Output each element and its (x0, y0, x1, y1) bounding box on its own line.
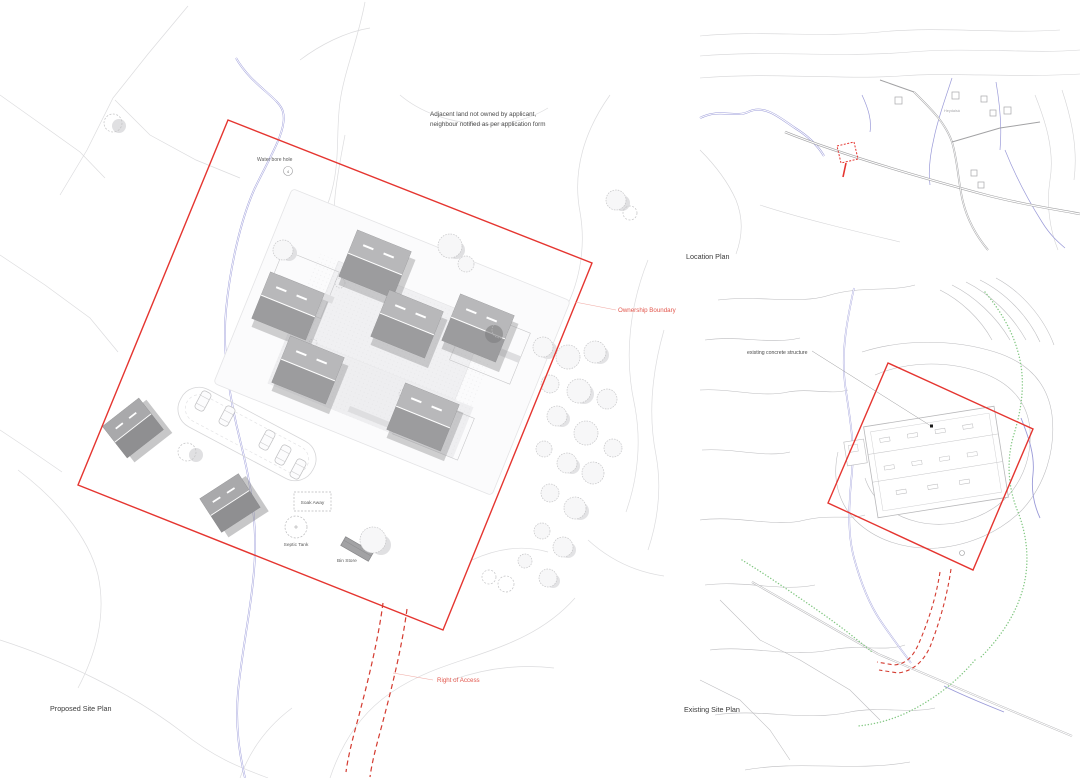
proposed-cabin (103, 395, 173, 464)
water-bore-hole-label: Water bore hole (257, 157, 293, 163)
right-of-access-label: Right of Access (437, 677, 480, 684)
car (258, 429, 276, 451)
location-plan-title: Location Plan (686, 252, 730, 261)
concrete-structure-leader (812, 351, 933, 428)
existing-plan-track (752, 582, 1072, 736)
existing-concrete-structure-shape (842, 406, 1008, 521)
proposed-cabin (200, 471, 269, 539)
car (194, 390, 212, 412)
septic-tank-label: Septic Tank (284, 542, 309, 548)
proposed-plan-stream (225, 58, 284, 778)
adjacent-land-note-line1: Adjacent land not owned by applicant, (430, 111, 536, 118)
ownership-boundary-label: Ownership Boundary (618, 307, 677, 314)
tree-shadow-on-roof (485, 325, 503, 343)
location-plan-streams (700, 78, 1065, 248)
bin-store-label: Bin Store (337, 558, 357, 564)
car (218, 405, 236, 427)
right-of-access-leader (393, 673, 433, 680)
location-plan-site-marker (837, 142, 858, 177)
existing-site-plan-title: Existing Site Plan (684, 705, 740, 714)
place-name-label: Heydalsá (944, 109, 961, 113)
existing-concrete-structure-label: existing concrete structure (747, 350, 808, 356)
adjacent-land-note-line2: neighbour notified as per application fo… (430, 121, 546, 128)
soak-away-label: Soak Away (301, 500, 325, 506)
proposed-site-plan-title: Proposed Site Plan (50, 704, 112, 713)
septic-tank-outline (285, 516, 307, 538)
right-of-access-track (346, 603, 407, 777)
car (274, 444, 292, 466)
architectural-drawing-sheet: Adjacent land not owned by applicant, ne… (0, 0, 1080, 778)
location-plan-contours (700, 30, 1080, 254)
site-plan-drawing: Adjacent land not owned by applicant, ne… (0, 0, 1080, 778)
